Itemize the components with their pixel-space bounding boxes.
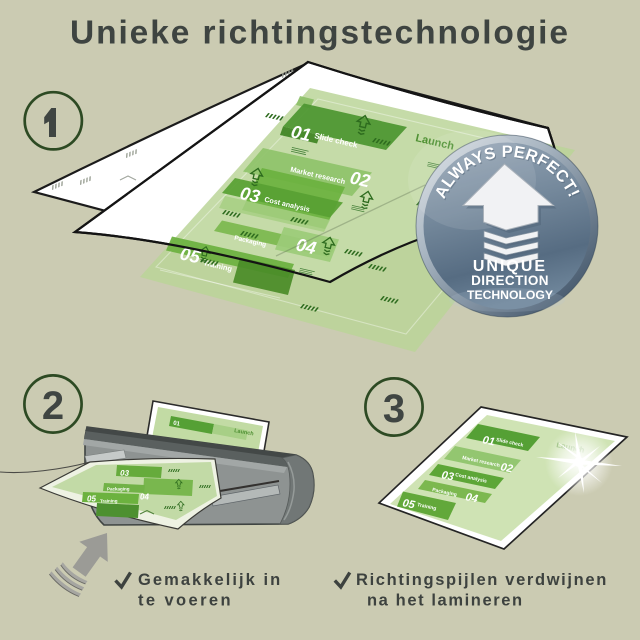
svg-text:na het lamineren: na het lamineren (367, 592, 524, 610)
svg-text:2: 2 (42, 384, 64, 428)
svg-text:01: 01 (481, 434, 495, 448)
svg-text:Unieke richtingstechnologie: Unieke richtingstechnologie (70, 15, 570, 52)
svg-text:03: 03 (440, 469, 454, 483)
svg-text:Packaging: Packaging (107, 487, 130, 492)
svg-text:02: 02 (499, 461, 513, 475)
svg-text:Richtingspijlen verdwijnen: Richtingspijlen verdwijnen (356, 571, 608, 589)
svg-text:3: 3 (383, 387, 405, 431)
svg-text:te voeren: te voeren (138, 592, 233, 610)
svg-text:TECHNOLOGY: TECHNOLOGY (467, 288, 553, 302)
svg-text:DIRECTION: DIRECTION (471, 273, 549, 288)
svg-text:04: 04 (140, 493, 149, 502)
svg-text:04: 04 (464, 491, 478, 505)
svg-text:Training: Training (100, 499, 118, 504)
svg-text:05: 05 (87, 495, 96, 504)
svg-text:03: 03 (120, 469, 130, 478)
svg-text:Gemakkelijk in: Gemakkelijk in (138, 571, 282, 589)
